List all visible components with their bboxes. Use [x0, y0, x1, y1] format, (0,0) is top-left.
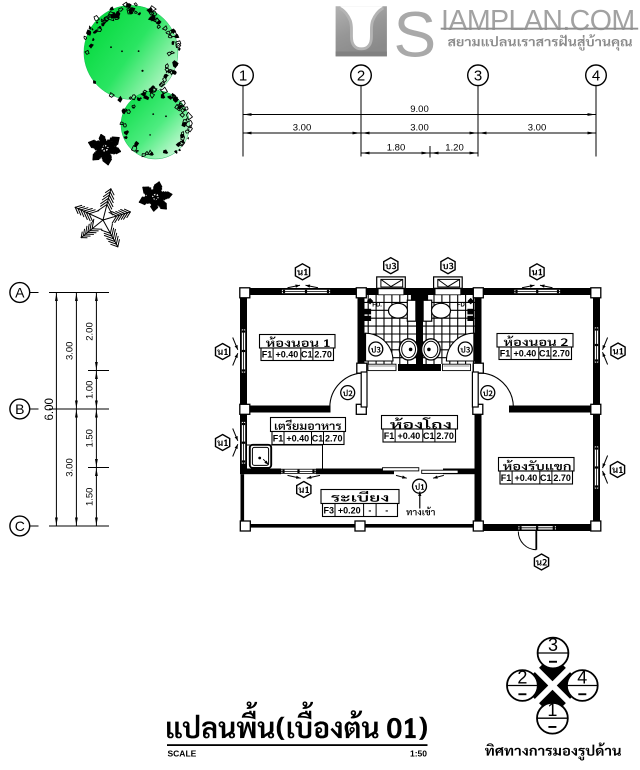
svg-text:2: 2 — [357, 67, 365, 84]
svg-text:+0.40: +0.40 — [514, 348, 537, 358]
svg-text:+0.40: +0.40 — [398, 431, 421, 441]
svg-text:2.70: 2.70 — [436, 431, 454, 441]
svg-text:FD.: FD. — [372, 303, 382, 309]
svg-text:2.70: 2.70 — [325, 433, 343, 443]
svg-text:C1: C1 — [540, 473, 552, 483]
svg-text:2: 2 — [517, 667, 527, 687]
svg-text:A: A — [15, 285, 25, 301]
svg-text:IAMPLAN.COM: IAMPLAN.COM — [441, 5, 635, 37]
svg-text:2.70: 2.70 — [553, 473, 571, 483]
svg-text:1: 1 — [239, 67, 247, 84]
svg-text:+0.40: +0.40 — [286, 433, 309, 443]
svg-text:1.50: 1.50 — [85, 429, 96, 448]
svg-text:B: B — [15, 401, 24, 417]
svg-text:2.70: 2.70 — [314, 349, 332, 359]
svg-text:2.00: 2.00 — [85, 322, 96, 341]
svg-text:2.70: 2.70 — [552, 348, 570, 358]
svg-text:F1: F1 — [273, 433, 284, 443]
svg-text:3: 3 — [474, 67, 482, 84]
svg-text:1: 1 — [547, 700, 557, 720]
svg-text:S: S — [394, 0, 437, 71]
svg-text:4: 4 — [592, 67, 600, 84]
svg-text:1.20: 1.20 — [445, 143, 464, 154]
svg-text:-: - — [385, 505, 388, 515]
svg-text:3.00: 3.00 — [65, 342, 76, 361]
svg-text:F3: F3 — [324, 505, 335, 515]
svg-text:3: 3 — [548, 635, 558, 655]
svg-text:F1: F1 — [384, 431, 395, 441]
svg-text:3.00: 3.00 — [65, 458, 76, 477]
svg-text:3.00: 3.00 — [528, 123, 547, 134]
svg-text:3.00: 3.00 — [410, 123, 429, 134]
svg-text:3.00: 3.00 — [293, 123, 312, 134]
svg-text:FD.: FD. — [457, 303, 467, 309]
svg-text:1:50: 1:50 — [410, 749, 427, 759]
svg-text:1.80: 1.80 — [387, 143, 406, 154]
svg-text:C1: C1 — [301, 349, 313, 359]
svg-text:F1: F1 — [500, 348, 511, 358]
svg-text:1.00: 1.00 — [85, 381, 96, 400]
svg-text:9.00: 9.00 — [410, 104, 429, 115]
svg-text:+0.40: +0.40 — [276, 349, 299, 359]
svg-text:+0.20: +0.20 — [338, 505, 361, 515]
svg-text:C1: C1 — [312, 433, 324, 443]
svg-text:C: C — [15, 518, 25, 534]
svg-text:-: - — [368, 505, 371, 515]
svg-text:F1: F1 — [262, 349, 273, 359]
svg-text:F1: F1 — [501, 473, 512, 483]
svg-text:1.50: 1.50 — [85, 488, 96, 507]
svg-text:+0.40: +0.40 — [515, 473, 538, 483]
svg-text:4: 4 — [577, 667, 587, 687]
svg-text:C1: C1 — [423, 431, 435, 441]
svg-text:C1: C1 — [539, 348, 551, 358]
svg-text:SCALE: SCALE — [168, 749, 197, 759]
svg-text:6.00: 6.00 — [44, 398, 56, 420]
